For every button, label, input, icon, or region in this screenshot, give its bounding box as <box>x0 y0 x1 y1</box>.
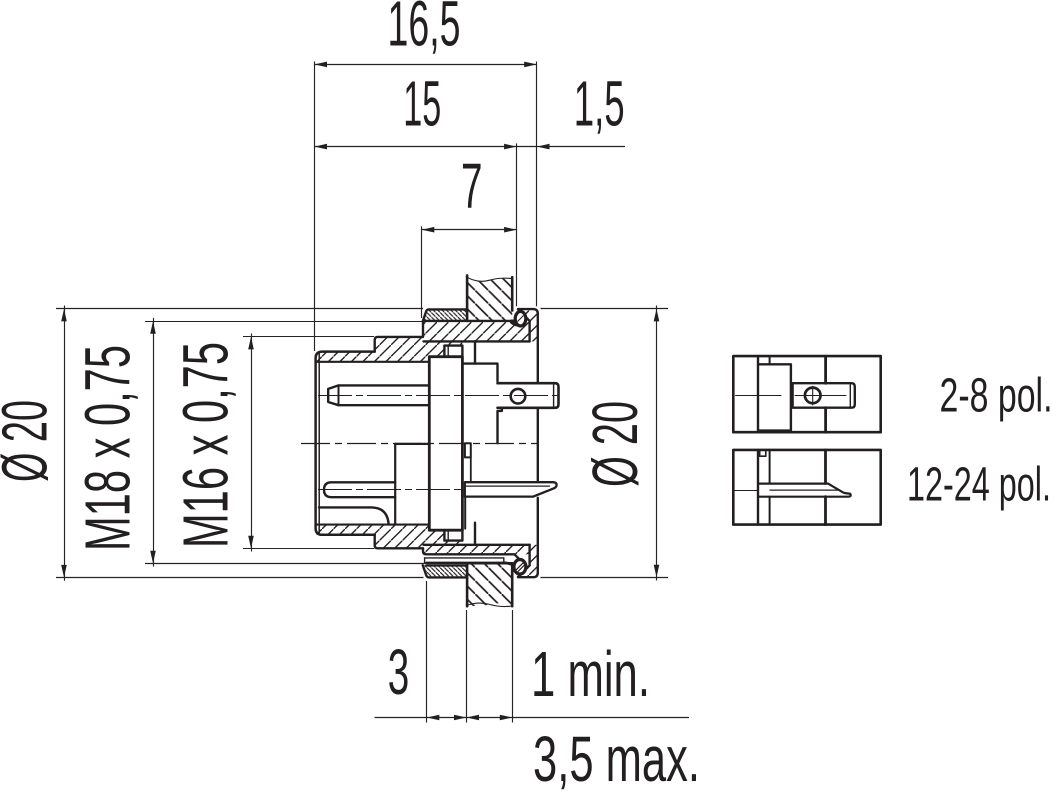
svg-text:15: 15 <box>403 68 441 140</box>
svg-text:7: 7 <box>461 150 483 222</box>
svg-text:Ø 20: Ø 20 <box>579 401 651 487</box>
svg-text:M18 x 0,75: M18 x 0,75 <box>72 345 144 551</box>
svg-text:3: 3 <box>388 636 410 708</box>
svg-text:16,5: 16,5 <box>388 0 461 60</box>
svg-text:M16 x 0,75: M16 x 0,75 <box>170 342 242 548</box>
svg-text:12-24 pol.: 12-24 pol. <box>907 459 1051 512</box>
svg-text:Ø 20: Ø 20 <box>0 400 61 482</box>
svg-text:1,5: 1,5 <box>574 68 625 140</box>
svg-text:1 min.: 1 min. <box>531 638 650 710</box>
svg-text:3,5 max.: 3,5 max. <box>533 723 700 792</box>
svg-text:2-8 pol.: 2-8 pol. <box>940 370 1053 423</box>
